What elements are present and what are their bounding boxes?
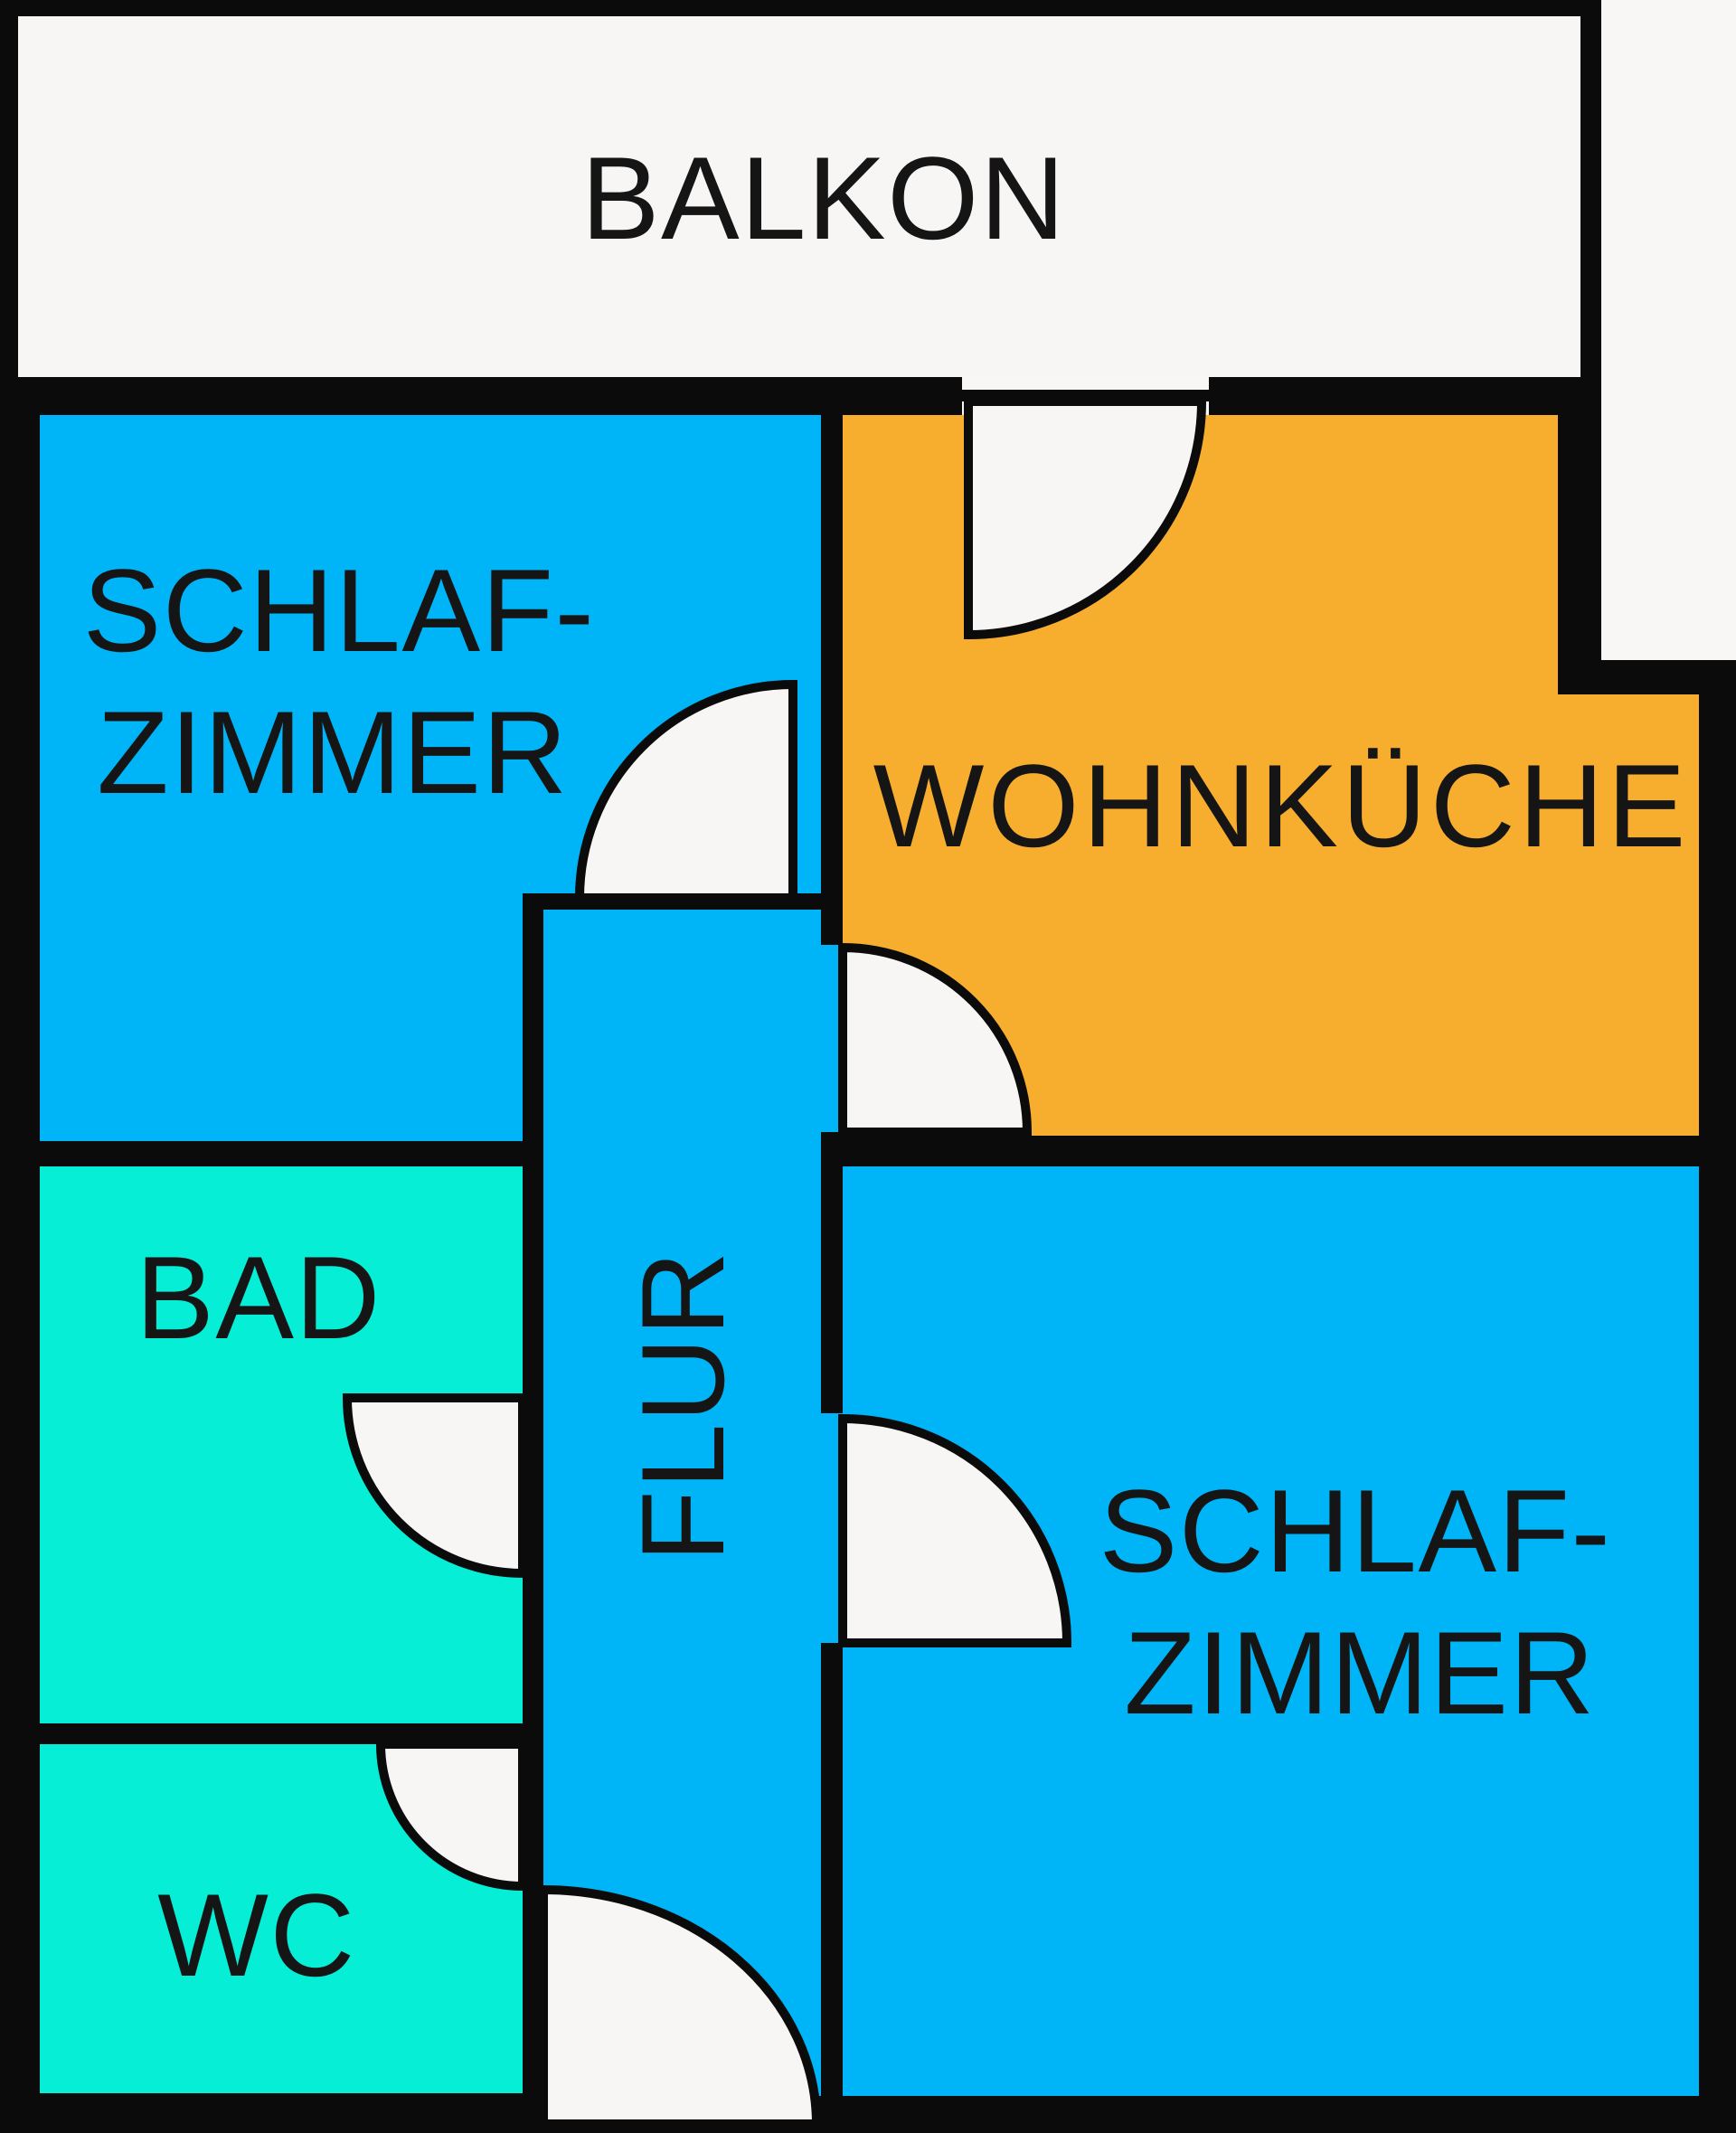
- svg-text:FLUR: FLUR: [617, 1250, 749, 1562]
- svg-text:SCHLAF-: SCHLAF-: [83, 544, 596, 676]
- svg-text:BAD: BAD: [136, 1232, 382, 1364]
- svg-text:WOHNKÜCHE: WOHNKÜCHE: [873, 740, 1690, 872]
- svg-text:BALKON: BALKON: [581, 132, 1066, 264]
- svg-text:ZIMMER: ZIMMER: [97, 686, 569, 818]
- svg-text:WC: WC: [157, 1869, 356, 2001]
- svg-text:ZIMMER: ZIMMER: [1124, 1607, 1596, 1739]
- svg-text:SCHLAF-: SCHLAF-: [1099, 1465, 1612, 1597]
